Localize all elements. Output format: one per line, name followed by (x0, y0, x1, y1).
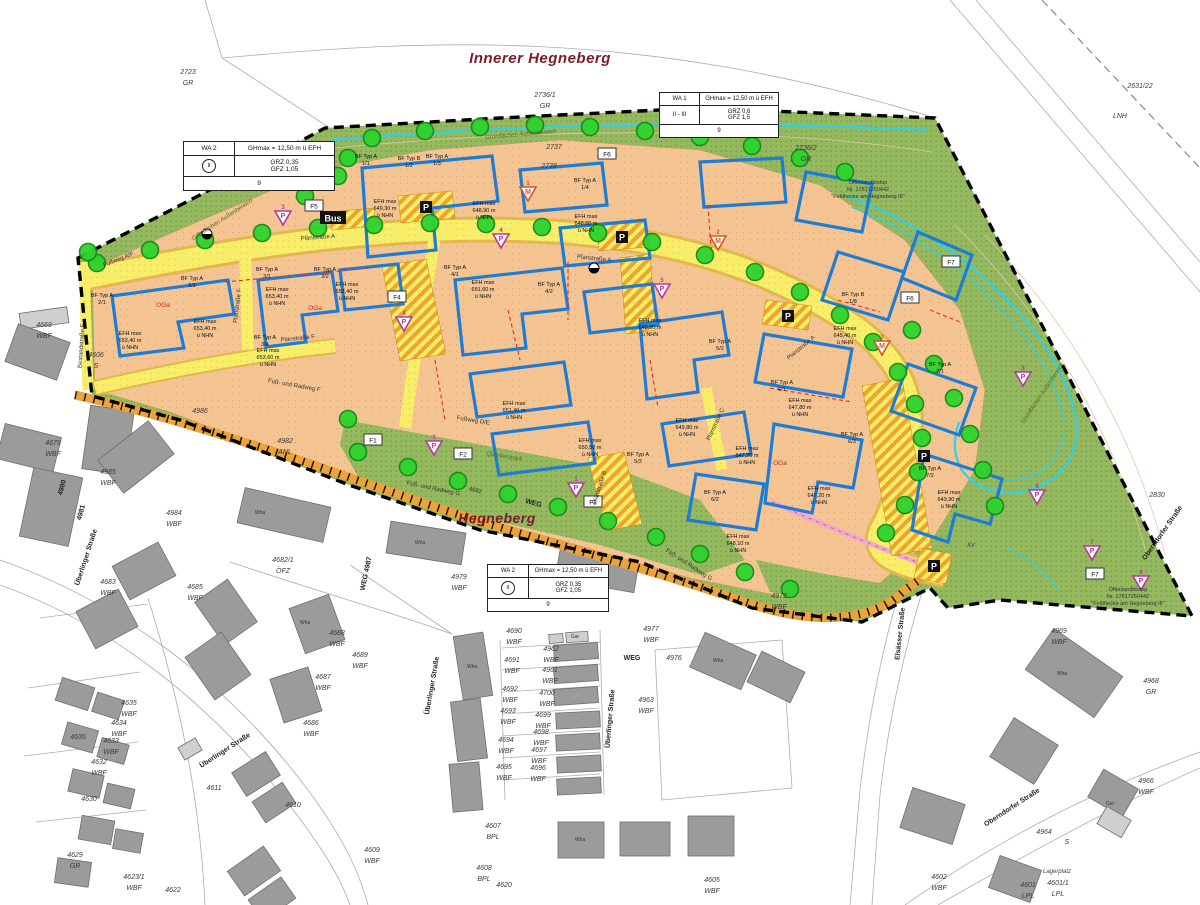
building-footprint (449, 762, 483, 812)
parcel-use: GR (540, 103, 551, 110)
tree-icon (832, 307, 849, 324)
parcel-number: 4610 (285, 802, 301, 809)
parcel-use: BPL (486, 834, 499, 841)
f-marker-label: F5 (310, 204, 318, 211)
units-value: 9 (660, 125, 778, 137)
building-footprint (990, 718, 1058, 785)
building-use-label: Wha (1057, 671, 1068, 677)
parcel-use: GR (1146, 689, 1157, 696)
f-marker-label: F4 (393, 295, 401, 302)
parcel-use: WBF (126, 885, 142, 892)
storeys-badge: II (501, 581, 515, 595)
f-marker-label: F6 (603, 152, 611, 159)
parcel-use: WBF (502, 697, 518, 704)
parcel-number: 4630 (81, 796, 97, 803)
zone-label: WA 2 (488, 565, 529, 577)
tree-icon (744, 138, 761, 155)
parcel-use: WBF (111, 731, 127, 738)
building-footprint (450, 698, 487, 761)
parcel-number: 4611 (206, 785, 221, 792)
garage-footprint (178, 738, 202, 760)
parcel-use: WBF (531, 758, 547, 765)
units-value: 9 (184, 177, 334, 190)
marker-letter: P (432, 443, 437, 450)
parcel-number: 4692 (502, 686, 518, 693)
parcel-number: 4691 (504, 657, 520, 664)
parcel-number: 4608 (476, 865, 492, 872)
parking-label: P (921, 452, 927, 462)
parcel-use: WBF (530, 776, 546, 783)
parcel-use: WBF (1138, 789, 1154, 796)
area-title-innerer-hegneberg: Innerer Hegneberg (469, 50, 611, 67)
parcel-use: WBF (533, 740, 549, 747)
tree-icon (946, 390, 963, 407)
gfz-value: GFZ 1,05 (556, 588, 581, 594)
map-canvas: F1F2F3F4F5F6F6F7F7PPPPPBusP3P4P4P5P1P1P3… (0, 0, 1200, 905)
parcel-number: 4690 (506, 628, 522, 635)
parcel-use: WBF (329, 641, 345, 648)
tree-icon (747, 264, 764, 281)
oga-label: OGa (156, 302, 170, 309)
parcel-use: WBF (36, 333, 52, 340)
building-footprint (1025, 628, 1122, 717)
units-value: 9 (488, 599, 608, 611)
ghmax-value: = 12,50 m ü EFH (557, 568, 603, 574)
building-footprint (112, 829, 143, 854)
f-marker-label: F7 (1091, 572, 1099, 579)
marker-letter: P (660, 286, 665, 293)
building-footprint (112, 542, 176, 600)
tree-icon (904, 322, 921, 339)
legend-box-wa2-top: WA 2 GHmax = 12,50 m ü EFH II GRZ 0,35GF… (183, 141, 335, 191)
building-footprint (553, 686, 598, 705)
tree-icon (648, 529, 665, 546)
parcel-number: 4636 (70, 734, 86, 741)
parcel-number: 4968 (1143, 678, 1159, 685)
parcel-use: WBF (643, 637, 659, 644)
parcel-number: S (1065, 839, 1070, 846)
parcel-number: 2631/22 (1126, 83, 1152, 90)
tree-icon (897, 497, 914, 514)
building-footprint (0, 424, 61, 473)
tree-icon (366, 217, 383, 234)
parcel-number: 4963 (638, 697, 654, 704)
garage-footprint (549, 634, 564, 644)
parcel-number: 4687 (315, 674, 332, 681)
street-label: Überlinger Straße (602, 689, 616, 748)
street-label: Elsässer Straße (894, 607, 906, 660)
parcel-number: 4622 (165, 887, 181, 894)
parking-label: P (619, 233, 625, 243)
parcel-use: WBF (187, 595, 203, 602)
parking-label: P (423, 203, 429, 213)
building-footprint (688, 816, 734, 856)
ghmax-label: GHmax (248, 145, 270, 152)
ghmax-label: GHmax (535, 568, 555, 574)
parcel-number: 4696 (530, 765, 546, 772)
tree-icon (890, 364, 907, 381)
f-marker-badge: F2 (454, 448, 472, 459)
parcel-number: 2830 (1148, 492, 1165, 499)
parcel-number: 4679 (45, 440, 61, 447)
parcel-number: 4601 (1020, 882, 1036, 889)
storeys-value: II - III (660, 106, 700, 124)
cadastral-line (0, 585, 350, 905)
parcel-number: 2723 (179, 69, 196, 76)
f-marker-label: F6 (906, 296, 914, 303)
building-footprint (747, 651, 805, 703)
parcel-number: 4969 (1051, 628, 1067, 635)
parcel-use: WBF (91, 770, 107, 777)
parcel-number: 4607 (485, 823, 502, 830)
building-footprint (19, 468, 82, 547)
cadastral-line (976, 0, 1200, 262)
parcel-use: LPL (1022, 893, 1035, 900)
parking-label: P (785, 312, 791, 322)
storeys-badge: II (202, 159, 216, 173)
f-marker-label: F2 (459, 452, 467, 459)
tree-icon (500, 486, 517, 503)
parcel-number: 4973 (771, 593, 787, 600)
tree-icon (364, 130, 381, 147)
parking-badge: P (420, 201, 432, 213)
parcel-use: WBF (542, 678, 558, 685)
legend-box-wa1: WA 1 GHmax = 12,50 m ü EFH II - III GRZ … (659, 92, 779, 138)
parcel-use: WBF (364, 858, 380, 865)
parcel-use: WBF (638, 708, 654, 715)
zone-label: WA 1 (660, 93, 700, 105)
parcel-number: 4961 (542, 667, 558, 674)
parcel-number: 4698 (533, 729, 549, 736)
parcel-number: 4694 (498, 737, 514, 744)
parcel-number: 4685 (187, 584, 203, 591)
parcel-number: 4620 (496, 882, 512, 889)
ghmax-label: GHmax (705, 96, 725, 102)
zone-label: WA 2 (184, 142, 235, 155)
parcel-number: 4966 (1138, 778, 1154, 785)
marker-letter: P (281, 213, 286, 220)
parcel-use: WBF (771, 604, 787, 611)
parcel-use: WBF (500, 719, 516, 726)
building-use-label: Wha (415, 540, 426, 546)
f-marker-label: F7 (947, 260, 955, 267)
tree-icon (350, 444, 367, 461)
tree-icon (637, 123, 654, 140)
parcel-use: WBF (451, 585, 467, 592)
building-footprint (556, 711, 601, 729)
tree-icon (472, 119, 489, 136)
bus-stop-badge: Bus (320, 211, 346, 224)
parcel-number: 4633 (103, 738, 119, 745)
parcel-number: 4629 (67, 852, 83, 859)
parking-badge: P (928, 560, 940, 572)
parcel-use: WBF (504, 668, 520, 675)
f-marker-label: F1 (369, 438, 377, 445)
tree-icon (975, 462, 992, 479)
marker-letter: P (1090, 548, 1095, 555)
cadastral-line (205, 0, 330, 128)
parcel-number: 4682/1 (272, 557, 294, 564)
building-footprint (557, 777, 602, 795)
parcel-number: 4697 (531, 747, 548, 754)
marker-letter: P (402, 319, 407, 326)
building-footprint (620, 822, 670, 856)
parcel-number: 4979 (451, 574, 467, 581)
building-footprint (55, 677, 95, 710)
tree-icon (80, 244, 97, 261)
tree-icon (142, 242, 159, 259)
parcel-number: 4609 (364, 847, 380, 854)
parcel-number: 4606 (88, 352, 104, 359)
tree-icon (837, 164, 854, 181)
parcel-number: 4669 (36, 322, 52, 329)
f-marker-badge: F6 (901, 292, 919, 303)
street-label: 4981 (76, 504, 87, 521)
site-plan-map: F1F2F3F4F5F6F6F7F7PPPPPBusP3P4P4P5P1P1P3… (0, 0, 1200, 905)
parking-badge: P (918, 450, 930, 462)
building-footprint (557, 755, 602, 773)
parcel-use: LPL (1052, 891, 1065, 898)
tree-icon (254, 225, 271, 242)
ghmax-value: = 12,50 m ü EFH (727, 96, 773, 102)
parcel-use: WBF (498, 748, 514, 755)
f-marker-badge: F7 (1086, 568, 1104, 579)
parcel-number: 2737 (545, 144, 563, 151)
building-footprint (386, 521, 466, 564)
parcel-number: 4982 (277, 438, 293, 445)
parcel-number: 4688 (329, 630, 345, 637)
legend-box-wa2-bottom: WA 2 GHmax = 12,50 m ü EFH II GRZ 0,35GF… (487, 564, 609, 612)
marker-letter: P (1021, 374, 1026, 381)
marker-letter: P (574, 485, 579, 492)
parcel-number: 4623/1 (123, 874, 145, 881)
parcel-number: 4634 (111, 720, 127, 727)
parcel-use: WBF (352, 663, 368, 670)
marker-letter: P (499, 236, 504, 243)
f-marker-badge: F1 (364, 434, 382, 445)
parcel-use: WBF (1051, 639, 1067, 646)
tree-icon (582, 119, 599, 136)
f-marker-badge: F5 (305, 200, 323, 211)
parcel-use: WBF (315, 685, 331, 692)
building-footprint (185, 632, 251, 700)
tree-icon (400, 459, 417, 476)
parcel-use: WBF (506, 639, 522, 646)
building-footprint (556, 733, 601, 751)
oga-label: OGa (773, 460, 787, 467)
parcel-use: WBF (303, 731, 319, 738)
parcel-number: 4964 (1036, 829, 1052, 836)
parcel-number: 4977 (643, 626, 660, 633)
parcel-number: 4689 (352, 652, 368, 659)
tree-icon (962, 426, 979, 443)
oga-label: OGa (308, 305, 322, 312)
parcel-use: ÖFZ (276, 567, 291, 575)
tree-icon (792, 284, 809, 301)
parcel-use: WBF (45, 451, 61, 458)
parcel-use: WBF (543, 657, 559, 664)
tree-icon (417, 123, 434, 140)
parcel-number: 4695 (496, 764, 512, 771)
marker-letter: P (1035, 492, 1040, 499)
building-use-label: Wha (713, 658, 724, 664)
parcel-use: WBF (121, 711, 137, 718)
cadastral-line (850, 588, 900, 905)
parcel-use: WBF (539, 701, 555, 708)
tree-icon (737, 564, 754, 581)
parcel-use: WBF (704, 888, 720, 895)
building-footprint (553, 642, 598, 661)
cadastral-dashed-line (1042, 0, 1200, 168)
parcel-number: 4693 (500, 708, 516, 715)
parcel-use: WBF (100, 480, 116, 487)
gfz-value: GFZ 1,5 (728, 115, 750, 121)
building-use-label: Wha (255, 510, 266, 516)
parcel-use: GR (801, 156, 812, 163)
parcel-number: LNH (1113, 113, 1128, 120)
building-footprint (553, 664, 598, 683)
parcel-number: 4984 (166, 510, 182, 517)
marker-letter: M (525, 189, 531, 196)
parcel-use: S (94, 363, 99, 370)
parcel-number: 4602 (931, 874, 947, 881)
area-title-hegneberg: Hegneberg (458, 510, 536, 526)
building-use-label: Wha (575, 837, 586, 843)
f-marker-badge: F4 (388, 291, 406, 302)
building-footprint (103, 783, 135, 809)
f-marker-badge: F7 (942, 256, 960, 267)
street-label: Oberndorfer Straße (983, 787, 1041, 828)
tree-icon (692, 546, 709, 563)
building-use-label: Gar (571, 634, 580, 640)
note-label: Lagerplatz (1043, 869, 1071, 875)
street-label: WEG 4987 (360, 556, 374, 591)
bus-stop-label: Bus (324, 214, 341, 224)
parcel-use: GR (183, 80, 194, 87)
tree-icon (534, 219, 551, 236)
tree-icon (878, 525, 895, 542)
parcel-number: 4635 (121, 700, 137, 707)
parcel-number: 4632 (91, 759, 107, 766)
parcel-number: 4976 (666, 655, 682, 662)
parking-label: P (931, 562, 937, 572)
tree-icon (600, 513, 617, 530)
tree-icon (914, 430, 931, 447)
tree-icon (340, 411, 357, 428)
parcel-use: ANL (277, 449, 292, 456)
parcel-use: BPL (477, 876, 490, 883)
parcel-number: 4986 (192, 408, 208, 415)
street-label: WEG (624, 655, 641, 662)
parcel-use: WBF (100, 590, 116, 597)
tree-icon (987, 498, 1004, 515)
parcel-number: 2738 (540, 163, 557, 170)
parcel-number: 2736/1 (533, 92, 556, 99)
street-label: Überlinger Straße (72, 528, 99, 587)
parcel-number: 4699 (535, 712, 551, 719)
building-use-label: Wha (300, 620, 311, 626)
tree-icon (644, 234, 661, 251)
marker-letter: P (1139, 578, 1144, 585)
street-label: Überlinger Straße (422, 656, 441, 716)
parking-badge: P (616, 231, 628, 243)
parcel-number: 4985 (100, 469, 116, 476)
grz-value: GRZ 0,35 (270, 159, 298, 166)
gfz-value: GFZ 1,05 (271, 166, 298, 173)
parcel-number: 4683 (100, 579, 116, 586)
building-footprint (195, 579, 258, 645)
building-use-label: Gar (1106, 801, 1115, 807)
cadastral-line (938, 768, 1200, 905)
marker-letter: M (879, 343, 885, 350)
parcel-use: WBF (496, 775, 512, 782)
lamp-icon (589, 263, 599, 273)
parcel-number: 4962 (543, 646, 559, 653)
parking-badge: P (782, 310, 794, 322)
marker-letter: M (715, 238, 721, 245)
cadastral-line (230, 562, 452, 634)
f-marker-badge: F6 (598, 148, 616, 159)
parcel-number: 4605 (704, 877, 720, 884)
parcel-use: WBF (103, 749, 119, 756)
connector-road-1 (245, 248, 248, 350)
parcel-number: 4700 (539, 690, 555, 697)
tree-icon (907, 396, 924, 413)
tree-icon (422, 215, 439, 232)
building-footprint (237, 488, 331, 543)
ghmax-value: = 12,50 m ü EFH (272, 145, 321, 152)
street-label: Überlinger Straße (198, 730, 252, 770)
parcel-number: 4601/1 (1047, 880, 1069, 887)
building-footprint (92, 692, 125, 720)
parcel-use: GR (70, 863, 81, 870)
building-footprint (900, 788, 965, 845)
tree-icon (550, 499, 567, 516)
parcel-use: WBF (931, 885, 947, 892)
tree-icon (697, 247, 714, 264)
building-use-label: Wha (467, 664, 478, 670)
tree-icon (450, 473, 467, 490)
parcel-use: WBF (166, 521, 182, 528)
note-label: XV (966, 543, 976, 549)
parcel-number: 4686 (303, 720, 319, 727)
building-footprint (78, 815, 115, 844)
parcel-number: 2736/2 (794, 145, 817, 152)
